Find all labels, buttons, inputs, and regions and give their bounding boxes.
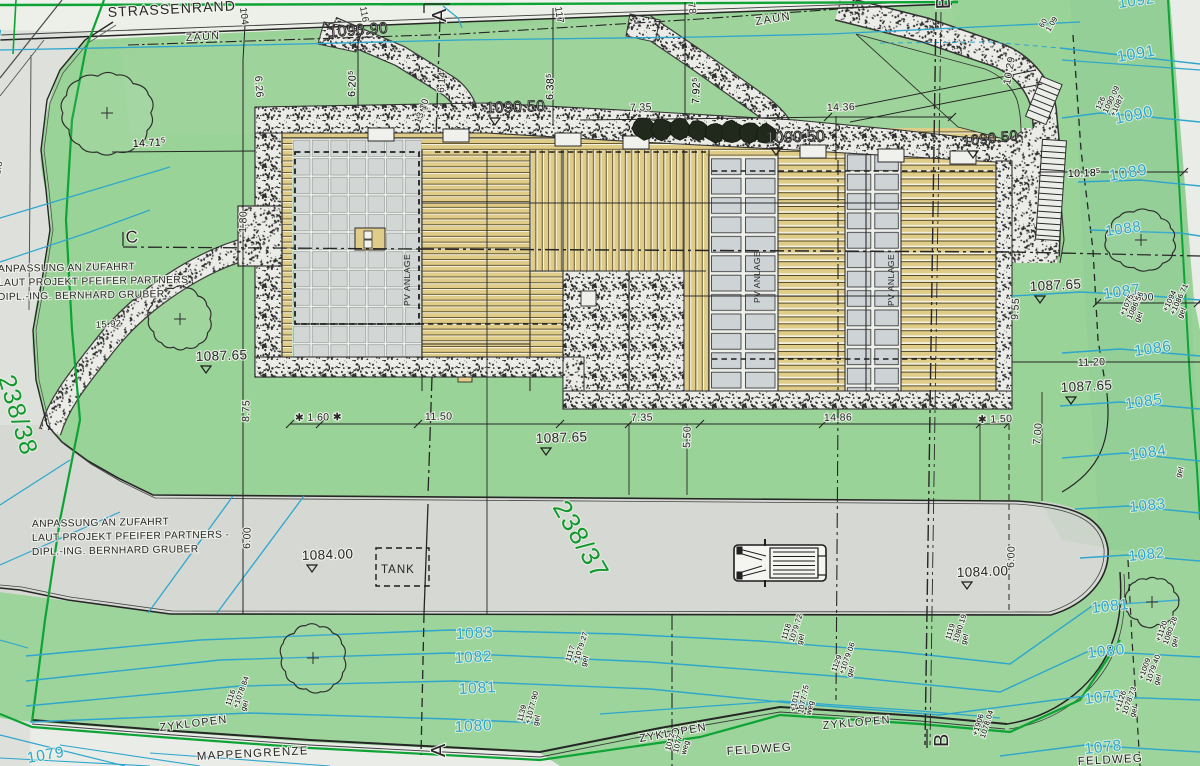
svg-text:14.86: 14.86	[824, 412, 852, 424]
svg-text:TANK: TANK	[381, 564, 415, 576]
svg-text:1087.65: 1087.65	[1029, 276, 1081, 294]
svg-text:117: 117	[552, 6, 565, 24]
svg-text:1082: 1082	[454, 648, 493, 667]
svg-text:1090.50: 1090.50	[486, 98, 546, 117]
svg-text:10.185: 10.185	[1068, 167, 1101, 180]
svg-text:PV ANLAGE: PV ANLAGE	[886, 254, 896, 306]
svg-text:7.35: 7.35	[631, 412, 653, 424]
svg-text:15.92: 15.92	[95, 318, 121, 331]
svg-text:14.36: 14.36	[827, 101, 856, 114]
svg-text:1.80: 1.80	[237, 211, 250, 233]
svg-text:78: 78	[685, 2, 698, 15]
svg-text:14.715: 14.715	[133, 136, 166, 150]
svg-text:6.00: 6.00	[1005, 546, 1018, 568]
svg-text:104: 104	[237, 7, 250, 26]
svg-text:A: A	[428, 743, 450, 757]
svg-text:8.75: 8.75	[240, 400, 253, 422]
svg-text:9.55: 9.55	[1009, 298, 1022, 321]
svg-text:✱ 1.60 ✱: ✱ 1.60 ✱	[295, 411, 342, 424]
svg-text:✱ 1.50: ✱ 1.50	[978, 413, 1013, 426]
svg-text:ZAUN: ZAUN	[186, 30, 221, 44]
svg-text:1087.65: 1087.65	[536, 429, 588, 446]
svg-text:1083: 1083	[455, 624, 494, 643]
svg-text:6.14: 6.14	[436, 71, 448, 93]
svg-text:1084.00: 1084.00	[302, 546, 354, 563]
svg-text:1087.65: 1087.65	[1060, 377, 1112, 395]
svg-text:1080: 1080	[454, 717, 493, 736]
svg-text:1081: 1081	[458, 679, 497, 698]
svg-text:C: C	[125, 227, 139, 247]
svg-text:PV ANLAGE: PV ANLAGE	[402, 254, 412, 306]
svg-text:B: B	[931, 734, 953, 747]
svg-text:6.00: 6.00	[241, 527, 254, 549]
svg-text:1087.65: 1087.65	[196, 347, 248, 364]
svg-text:B: B	[933, 0, 955, 10]
svg-text:11.20: 11.20	[1078, 356, 1106, 369]
svg-text:7.00: 7.00	[1031, 422, 1045, 445]
svg-text:1090.50: 1090.50	[766, 128, 826, 147]
svg-text:5.50: 5.50	[681, 426, 694, 448]
svg-text:7.35: 7.35	[630, 101, 652, 114]
svg-text:6.26: 6.26	[252, 75, 266, 98]
svg-text:PV ANLAGE: PV ANLAGE	[752, 251, 762, 303]
svg-text:1084.00: 1084.00	[957, 563, 1009, 580]
svg-text:11.50: 11.50	[425, 411, 453, 423]
